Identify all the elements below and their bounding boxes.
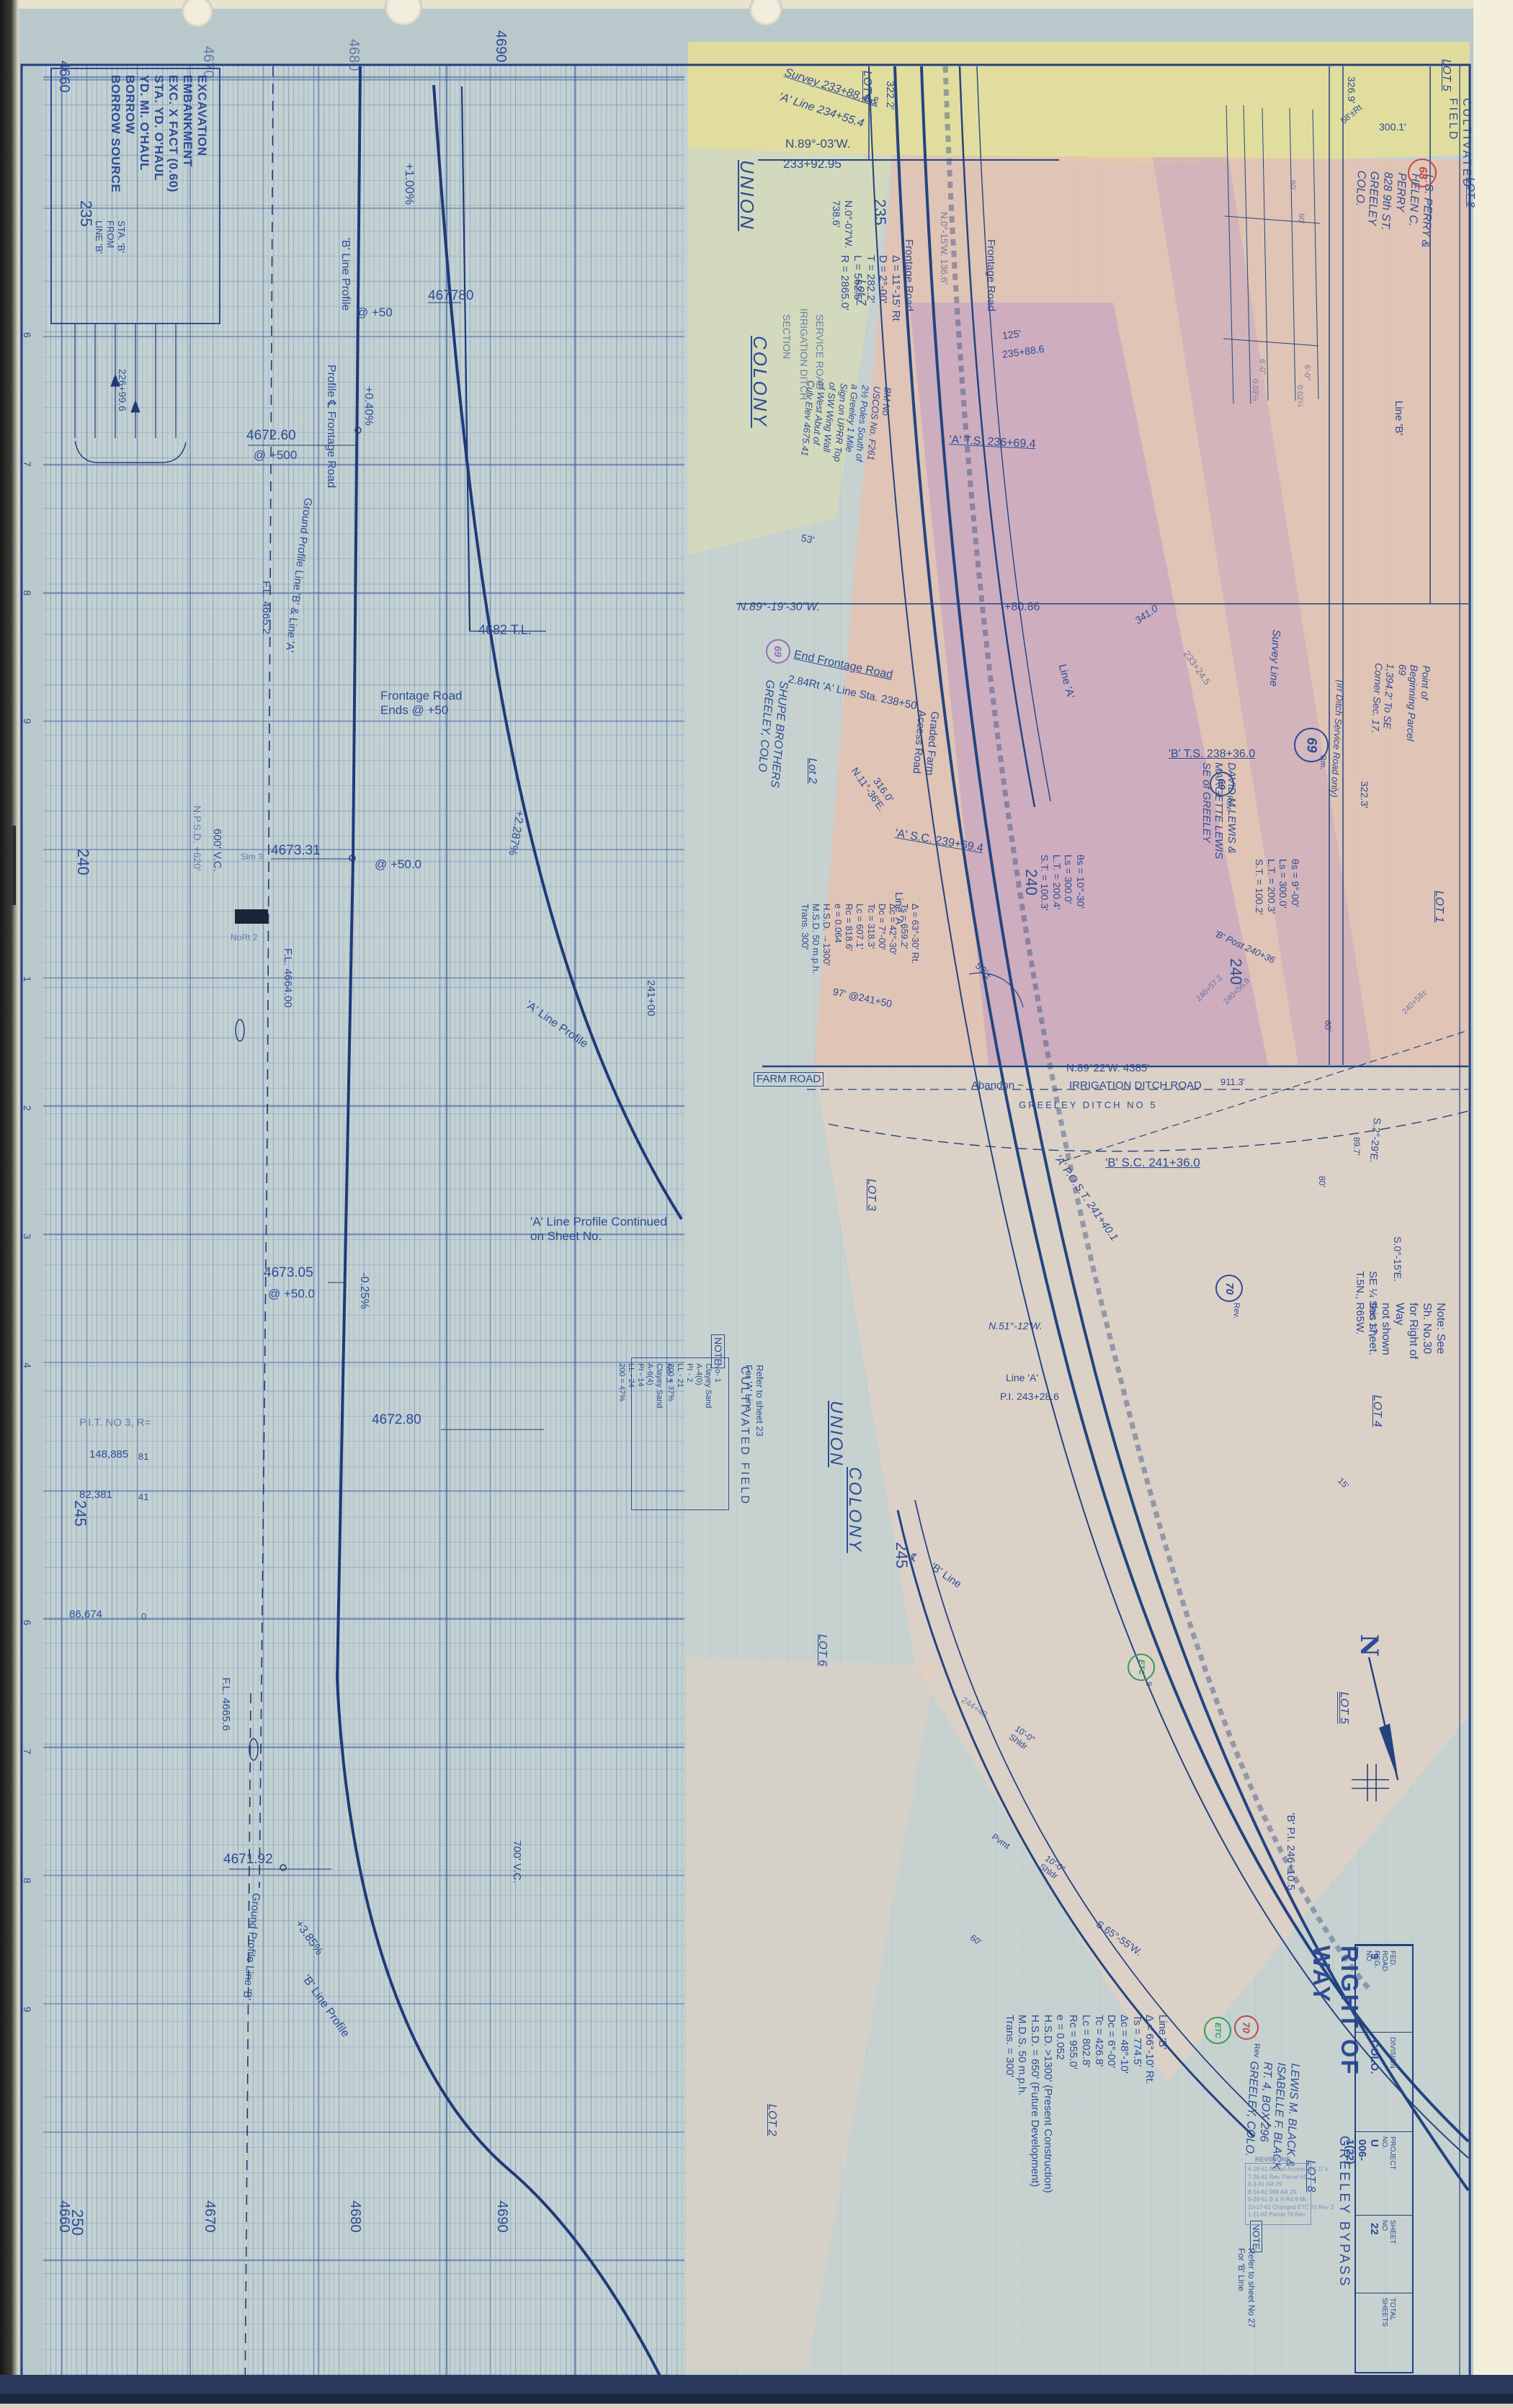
map-label: 4680 [346,2200,363,2233]
map-label: 6 [21,1620,33,1626]
map-label: 4670 [200,2200,218,2233]
map-label: 4682 T.L. [478,623,532,638]
map-label: LOT 2 [764,2104,778,2136]
map-label: 4671.92 [223,1852,273,1868]
map-label: 6 [21,332,33,338]
map-label: SECTION [780,314,793,359]
map-label: 41 [138,1491,148,1502]
map-label: 8 [21,1878,33,1883]
map-label: NOTE [711,1334,725,1368]
map-label: Rev. [1224,795,1233,811]
map-label: 4670 [199,46,216,79]
map-label: 467780 [428,288,473,304]
map-label: P.I. 243+28.6 [1000,1391,1059,1403]
map-label: UNION [736,160,758,231]
parcel-salmon-lower [814,1066,1470,2082]
title-block-value: U 006-1(22) [1344,2139,1380,2171]
map-label: NoRt 2 [231,932,257,942]
parcel-marker: ETC [1128,1654,1155,1681]
map-label: 60' [1287,180,1297,190]
map-label: 0 [141,1611,146,1622]
map-label: 82,381 [79,1489,112,1502]
map-label: N.89°22'W. 4385' [1066,1062,1149,1075]
title-block-row: FED. ROAD REG. NO9 [1356,1945,1412,2033]
title-block-row: SHEET NO22 [1356,2215,1412,2293]
scan-edge-bottom [0,2375,1513,2408]
map-label: 148,885 [89,1448,128,1461]
map-label: -0.25% [357,1272,370,1309]
map-label: Sim 3 [241,852,263,862]
map-label: 600' V.C. [210,829,223,872]
revision-row: 4-19-61 Added Access & C.D.'s [1248,2166,1328,2172]
map-label: Frontage Road [984,239,997,311]
map-label: F.L. 4665.6 [219,1677,232,1731]
map-label: N.89°-03'W. [785,137,850,151]
map-label: 9 [21,2007,33,2012]
map-label: SERVICE ROAD [813,314,826,391]
map-label: Line 'B' Δ = 66°-10' Rt. Ts = 774.5' Δc … [1003,2015,1169,2193]
map-label: STA. 'B' FROM LINE 'B' [94,220,127,254]
revision-row: 8-3-61 AR 29 [1248,2181,1282,2188]
map-label: +1.00% [402,163,416,205]
map-label: 1 [21,976,33,982]
map-label: 60' [1323,1020,1333,1032]
map-label: 322.3' [1358,781,1370,808]
map-label: Line 'A' [1006,1372,1038,1384]
map-label: F.L. 4665.2 [259,581,272,634]
map-label: 226+99.6 [116,369,128,411]
map-label: 60' [1296,213,1306,223]
map-label: Line 'B' [1392,401,1405,435]
map-label: 53' [800,532,816,546]
map-label: 8 [21,590,33,596]
map-label: 911.3' [1220,1076,1245,1087]
map-label: @ +50.0 [375,857,421,872]
map-label: 4660 [55,2200,72,2233]
parcel-marker: 68 [1408,159,1437,187]
map-label: Point of Beginning Parcel 69 1,394.2' To… [1369,663,1432,746]
map-label: 4680 [344,39,362,71]
map-label: @ +50.0 [268,1287,315,1301]
title-block-label: TOTAL SHEETS [1380,2298,1396,2327]
map-label: Profile ℄ Frontage Road [323,365,337,488]
parcel-marker: 69 [1294,728,1329,762]
map-label: F.L. 4664.00 [281,948,294,1008]
scan-edge-left [0,0,19,2408]
map-label: Frontage Road Ends @ +50 [380,689,462,718]
map-label: 3 [21,1234,33,1239]
map-label: 233+92.95 [783,157,842,171]
revision-row: 10-17-61 Changed ETC 70 Rev 2 [1248,2204,1334,2211]
map-label: S.0°-15'E. [1391,1236,1403,1282]
title-block-table: FED. ROAD REG. NO9DIVISIONCOLO.PROJECT N… [1354,1944,1414,2373]
map-label: 4690 [491,30,509,63]
soils-col-2: No- 3 Clayey Sand A-6(4) PI - 14 LL - 24… [617,1363,673,1408]
map-label: 240 [73,849,92,875]
map-label: 322.2' [883,81,896,110]
map-label: LOT 5 [1336,1692,1350,1723]
map-label: 245 [71,1500,89,1527]
soils-col-1: No- 1 Clayey Sand A-4(0) PI - 2 LL - 21 … [666,1363,722,1408]
map-label: FARM ROAD [754,1072,824,1087]
map-label: 4690 [493,2200,510,2233]
map-label: 6'-0" [1302,365,1311,380]
map-label: LOT 5 [1439,59,1452,91]
map-label: Frontage Road [902,239,915,311]
map-label: Rev [1251,2043,1261,2058]
map-label: 240 [1022,869,1040,896]
map-label: Rev. [1231,1303,1241,1319]
map-label: COLONY [844,1467,865,1553]
title-block-row: PROJECT NO.U 006-1(22) [1356,2131,1412,2216]
revision-row: 9-20-61 B & H Rd 9 Mi. [1248,2196,1308,2203]
map-label: θs = 10°-30' Ls = 300.0' L.T. = 200.4' S… [1039,855,1086,911]
map-label: P.I.T. NO 3, R= [79,1417,151,1430]
map-label: 'B' S.C. 241+36.0 [1105,1156,1200,1170]
map-label: 300.1' [1379,121,1406,133]
parcel-salmon-bottomleft [686,1657,937,2371]
map-label: CULTIVATED FIELD [1445,98,1473,189]
title-block-label: DIVISION [1388,2037,1396,2069]
map-label: 0.02¼ [1295,385,1304,407]
map-label: 245 [892,1542,911,1569]
map-label: N.51°-12'W. [988,1320,1043,1332]
map-label: Abandon ~ [971,1079,1024,1092]
quantities-legend-text: EXCAVATION EMBANKMENT EXC. X FACT (0.60)… [108,75,209,192]
map-label: 80' [1317,1176,1327,1187]
map-label: Refer to sheet No 27 For 'B' Line [1236,2248,1257,2328]
map-label: 'B' P.I. 246+10.5 [1284,1813,1297,1891]
map-label: Δ = 63°-30' Rt. Ts = 659.2' Δc = 42°-30'… [799,904,921,974]
map-label: GREELEY DITCH NO 5 [1019,1100,1157,1110]
map-label: 241+00 [644,980,657,1016]
map-label: N [1354,1634,1383,1656]
map-label: +0.40% [361,386,375,426]
map-label: 89.7' [1352,1137,1362,1156]
map-label: 4672.80 [372,1412,421,1428]
map-label: θs = 9°-00' Ls = 300.0' L.T. = 200.3' S.… [1254,859,1301,915]
map-label: 'B' Line Profile [338,238,352,311]
map-label: @ +50 [356,306,393,320]
map-label: 86,674 [69,1608,102,1621]
map-label: N.89°-19'-30"W. [738,601,820,615]
map-label: 7 [21,461,33,467]
map-label: COLONY [749,336,771,428]
map-label: 4673.05 [264,1265,313,1281]
revision-row: 7-25-61 Rev. Parcel 69 [1248,2174,1307,2180]
parcel-marker: 70 [1215,1275,1243,1302]
title-block-value: 22 [1368,2223,1380,2235]
parcel-marker: 70 [1234,2015,1259,2040]
map-label: BM No USCOS No. F261 2½ Poles South of a… [798,380,893,466]
title-block-label: PROJECT NO. [1380,2136,1396,2170]
map-label: LOT 6 [860,71,873,102]
map-label: 235 [870,199,889,226]
map-label: N.0°-15'W. 136.6' [939,212,950,285]
map-label: 700' V.C. [510,1840,523,1883]
map-label: 6'-0" [1257,359,1267,375]
map-label: 4660 [55,61,72,93]
map-label: Δ = 11°-15' Rt D = 2°-00' T = 282.2' L =… [839,255,902,321]
map-label: 9 [21,718,33,724]
map-label: 4673.31 [271,843,321,859]
title-block-row: TOTAL SHEETS [1356,2293,1412,2371]
map-label: LOT 1 [1432,891,1445,922]
title-block-row: DIVISIONCOLO. [1356,2032,1412,2132]
scan-mark [235,909,268,924]
map-label: 4672.60 [246,428,296,444]
map-label: 7 [21,1749,33,1754]
map-label: 326.9' [1345,76,1357,104]
map-label: 9 [1143,1682,1153,1686]
parcel-marker: 69 [1210,772,1234,796]
map-label: LEWIS M. BLACK & ISABELLE F. BLACK RT. 4… [1241,2061,1301,2171]
revision-row: 1-11-62 Parcel 70 Rev [1248,2211,1305,2218]
map-label: 81 [138,1451,148,1462]
title-block-value: COLO. [1368,2040,1380,2074]
map-label: IRRIGATION DITCH ROAD [1069,1079,1202,1092]
map-label: 'B' T.S. 238+36.0 [1169,748,1255,762]
map-label: CULTIVATED FIELD [737,1366,751,1506]
map-label: LOT 3 [864,1179,878,1210]
title-block-value: 9 [1368,1953,1380,1959]
map-label: 0.02¼ [1250,379,1259,401]
map-label: 'A' Line Profile Continued on Sheet No. [530,1215,667,1244]
map-label: 4 [21,1363,33,1368]
parcel-marker: ETC [1204,2017,1231,2044]
map-label: Note: See Sh. No.30 for Right of Way not… [1365,1303,1447,1369]
map-label: 235 [76,200,95,227]
map-label: 2 [21,1105,33,1111]
map-label: Lot 2 [805,758,818,784]
map-label: LOT 4 [1370,1395,1383,1427]
title-block-label: SHEET NO [1380,2220,1396,2244]
revisions-header: REVISIONS [1255,2156,1290,2163]
map-label: UNION [826,1401,846,1467]
map-label: N.0°-07'W. 738.6' [831,200,854,249]
revision-row: 8-14-61 988 AR 29 [1248,2189,1296,2195]
map-label: N.P.S.D. +620' [191,806,203,871]
map-label: @ +500 [254,448,297,463]
parcel-marker: 69 [766,639,790,664]
map-label: LOT 6 [815,1634,829,1666]
map-label: +80.86 [1004,601,1040,615]
